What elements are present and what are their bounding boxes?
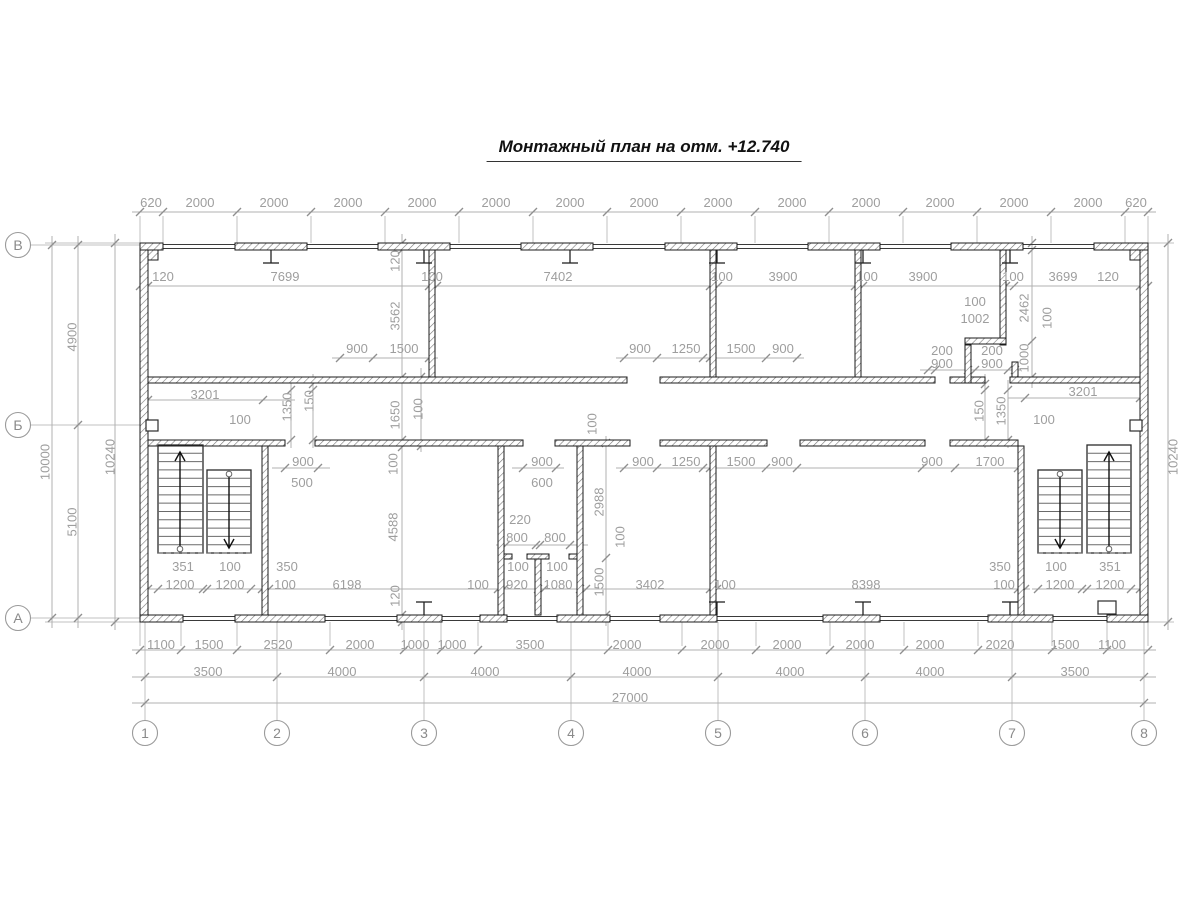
dim-label: 100 (546, 559, 568, 574)
dim-label: 3500 (1061, 664, 1090, 679)
dim-label: 4000 (776, 664, 805, 679)
dim-label: 900 (921, 454, 943, 469)
dim-label: 3900 (909, 269, 938, 284)
dim-label: 1200 (1046, 577, 1075, 592)
dim-label: 351 (1099, 559, 1121, 574)
dim-label: 600 (531, 475, 553, 490)
dim-label: 1200 (216, 577, 245, 592)
dim-label: 100 (1040, 307, 1055, 329)
dim-label: 1100 (1098, 637, 1126, 652)
dim-label: 3201 (1069, 384, 1098, 399)
dim-label: 6198 (333, 577, 362, 592)
dim-label: 3562 (388, 302, 403, 331)
dimension-labels: 6202000200020002000200020002000200020002… (38, 195, 1181, 705)
dim-label: 2462 (1017, 294, 1032, 323)
dim-label: 2000 (630, 195, 659, 210)
dim-label: 120 (388, 250, 403, 272)
dim-label: 350 (989, 559, 1011, 574)
dim-label: 1200 (1096, 577, 1125, 592)
dim-label: 4000 (623, 664, 652, 679)
dim-label: 900 (292, 454, 314, 469)
dim-label: 900 (772, 341, 794, 356)
dim-label: 100 (1045, 559, 1067, 574)
dim-label: 2000 (260, 195, 289, 210)
dim-label: 4588 (386, 513, 401, 542)
floor-plan-drawing: 6202000200020002000200020002000200020002… (0, 0, 1200, 900)
dim-label: 900 (632, 454, 654, 469)
dim-label: 2000 (186, 195, 215, 210)
dim-label: 100 (219, 559, 241, 574)
dim-label: 900 (531, 454, 553, 469)
dim-label: 1500 (727, 341, 756, 356)
dim-label: 900 (346, 341, 368, 356)
dim-label: 4900 (65, 323, 80, 352)
axis-bubble-label: 4 (567, 725, 575, 741)
dim-label: 4000 (328, 664, 357, 679)
panel-mount-symbols (263, 250, 1018, 615)
dim-label: 1700 (976, 454, 1005, 469)
dim-label: 2000 (846, 637, 875, 652)
dim-label: 4000 (471, 664, 500, 679)
dim-label: 350 (276, 559, 298, 574)
dim-label: 920 (506, 577, 528, 592)
dim-label: 10000 (38, 444, 53, 480)
dim-label: 3699 (1049, 269, 1078, 284)
axis-bubble-label: Б (13, 417, 22, 433)
dim-label: 500 (291, 475, 313, 490)
dim-label: 3500 (194, 664, 223, 679)
dim-label: 2000 (778, 195, 807, 210)
dim-label: 100 (274, 577, 296, 592)
dim-label: 900 (931, 356, 953, 371)
dim-label: 100 (1002, 269, 1024, 284)
dim-label: 800 (544, 530, 566, 545)
dim-label: 1650 (388, 401, 403, 430)
axis-bubble-label: 5 (714, 725, 722, 741)
dim-label: 2020 (986, 637, 1015, 652)
dim-label: 7699 (271, 269, 300, 284)
dim-label: 1500 (1051, 637, 1080, 652)
dim-label: 100 (714, 577, 736, 592)
dim-label: 2000 (852, 195, 881, 210)
dim-label: 220 (509, 512, 531, 527)
dim-label: 4000 (916, 664, 945, 679)
dim-label: 150 (972, 400, 987, 422)
dim-label: 120 (1097, 269, 1119, 284)
dim-label: 2000 (704, 195, 733, 210)
dim-label: 900 (771, 454, 793, 469)
dim-label: 10240 (1166, 439, 1181, 475)
dim-label: 1500 (592, 568, 607, 597)
axis-bubble-label: 1 (141, 725, 149, 741)
dim-label: 1250 (672, 341, 701, 356)
dim-label: 3500 (516, 637, 545, 652)
dim-label: 8398 (852, 577, 881, 592)
dim-label: 100 (613, 526, 628, 548)
axis-bubble-label: А (13, 610, 23, 626)
dim-label: 1500 (727, 454, 756, 469)
dim-label: 1000 (401, 637, 430, 652)
dim-label: 1200 (166, 577, 195, 592)
dim-label: 800 (506, 530, 528, 545)
dim-label: 120 (152, 269, 174, 284)
dim-label: 100 (964, 294, 986, 309)
dim-label: 2000 (613, 637, 642, 652)
dim-label: 100 (856, 269, 878, 284)
dim-label: 100 (993, 577, 1015, 592)
dim-label: 3900 (769, 269, 798, 284)
dim-label: 2000 (346, 637, 375, 652)
dim-label: 620 (1125, 195, 1147, 210)
dim-label: 3201 (191, 387, 220, 402)
dim-label: 1000 (1017, 344, 1032, 373)
dim-label: 1500 (195, 637, 224, 652)
dim-label: 2000 (1074, 195, 1103, 210)
dim-label: 2000 (408, 195, 437, 210)
dim-label: 2000 (556, 195, 585, 210)
dim-label: 100 (421, 269, 443, 284)
dim-label: 1000 (438, 637, 467, 652)
axis-bubble-label: 6 (861, 725, 869, 741)
drawing-title: Монтажный план на отм. +12.740 (487, 137, 802, 162)
dim-label: 100 (711, 269, 733, 284)
dim-label: 100 (1033, 412, 1055, 427)
dim-label: 3402 (636, 577, 665, 592)
dim-label: 100 (386, 453, 401, 475)
dim-label: 2520 (264, 637, 293, 652)
dim-label: 100 (585, 413, 600, 435)
dim-label: 900 (629, 341, 651, 356)
dim-label: 620 (140, 195, 162, 210)
dim-label: 1100 (147, 637, 175, 652)
dim-label: 7402 (544, 269, 573, 284)
axis-bubble-label: 3 (420, 725, 428, 741)
dim-label: 1350 (280, 393, 295, 422)
dim-label: 100 (229, 412, 251, 427)
dim-label: 351 (172, 559, 194, 574)
axis-bubble-label: В (13, 237, 22, 253)
dim-label: 100 (507, 559, 529, 574)
dim-label: 100 (467, 577, 489, 592)
dim-label: 1002 (961, 311, 990, 326)
dim-label: 1250 (672, 454, 701, 469)
dim-label: 1500 (390, 341, 419, 356)
axis-bubble-label: 2 (273, 725, 281, 741)
dim-label: 2988 (592, 488, 607, 517)
dim-label: 1350 (994, 397, 1009, 426)
dim-label: 2000 (482, 195, 511, 210)
dim-label: 2000 (926, 195, 955, 210)
dim-label: 27000 (612, 690, 648, 705)
dim-label: 5100 (65, 508, 80, 537)
dim-label: 2000 (1000, 195, 1029, 210)
dim-label: 150 (302, 390, 317, 412)
dim-label: 2000 (701, 637, 730, 652)
dim-label: 10240 (103, 439, 118, 475)
dim-label: 2000 (334, 195, 363, 210)
dim-label: 120 (388, 585, 403, 607)
dim-label: 100 (411, 398, 426, 420)
dim-label: 2000 (773, 637, 802, 652)
dim-label: 2000 (916, 637, 945, 652)
dim-label: 1080 (544, 577, 573, 592)
dim-label: 900 (981, 356, 1003, 371)
axis-bubble-label: 7 (1008, 725, 1016, 741)
axis-bubble-label: 8 (1140, 725, 1148, 741)
